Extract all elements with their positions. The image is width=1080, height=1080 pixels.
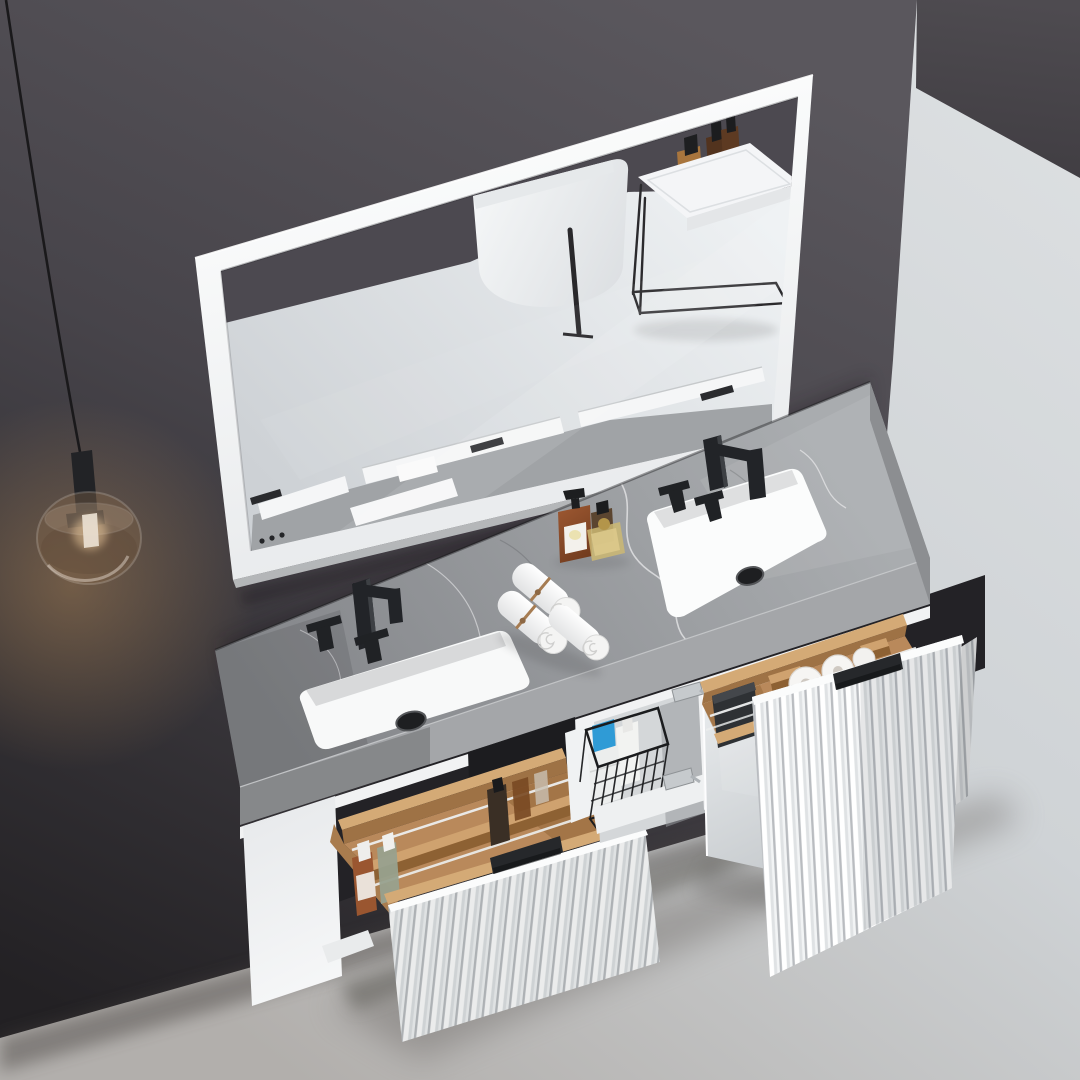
lamp-bulb [82,513,99,548]
label-logo [569,530,581,540]
bottle-label [356,871,376,901]
dark-flask [487,784,510,846]
amber-flask [512,777,531,821]
faucet-hole [269,535,274,540]
faucet-hole [279,532,284,537]
scene [0,0,1080,1080]
clear-bottle [534,770,549,805]
pump-top [711,121,722,142]
pump-stem [571,498,580,509]
perfume-cap [598,518,610,530]
cabinet-side-panel [243,796,342,1006]
faucet-hole [259,538,264,543]
front-shading [860,635,962,930]
bathroom-vanity-render [0,0,1080,1080]
